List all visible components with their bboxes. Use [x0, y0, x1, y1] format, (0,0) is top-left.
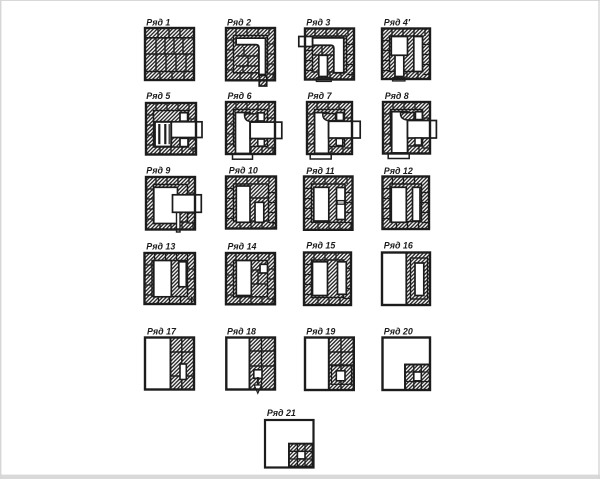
svg-text:Ряд 15: Ряд 15 — [306, 241, 336, 251]
svg-text:Ряд 20: Ряд 20 — [384, 327, 413, 337]
svg-text:Ряд 13: Ряд 13 — [146, 241, 175, 251]
svg-text:Ряд 3: Ряд 3 — [306, 17, 330, 27]
svg-text:Ряд 10: Ряд 10 — [229, 166, 258, 176]
svg-text:Ряд 4′: Ряд 4′ — [384, 17, 411, 27]
svg-text:Ряд 7: Ряд 7 — [308, 91, 333, 101]
svg-text:Ряд 12: Ряд 12 — [384, 166, 413, 176]
svg-text:Ряд 14: Ряд 14 — [228, 241, 257, 251]
svg-text:Ряд 5: Ряд 5 — [146, 91, 171, 101]
svg-text:Ряд 1: Ряд 1 — [146, 17, 170, 27]
svg-text:Ряд 9: Ряд 9 — [146, 166, 170, 176]
svg-text:Ряд 2: Ряд 2 — [227, 17, 251, 27]
svg-text:Ряд 17: Ряд 17 — [147, 327, 177, 337]
svg-text:Ряд 8: Ряд 8 — [385, 91, 409, 101]
svg-text:Ряд 21: Ряд 21 — [267, 408, 296, 418]
svg-text:Ряд 11: Ряд 11 — [306, 166, 334, 176]
svg-text:Ряд 16: Ряд 16 — [384, 241, 413, 251]
svg-text:Ряд 6: Ряд 6 — [228, 91, 252, 101]
svg-text:Ряд 19: Ряд 19 — [306, 327, 335, 337]
svg-text:Ряд 18: Ряд 18 — [227, 327, 256, 337]
